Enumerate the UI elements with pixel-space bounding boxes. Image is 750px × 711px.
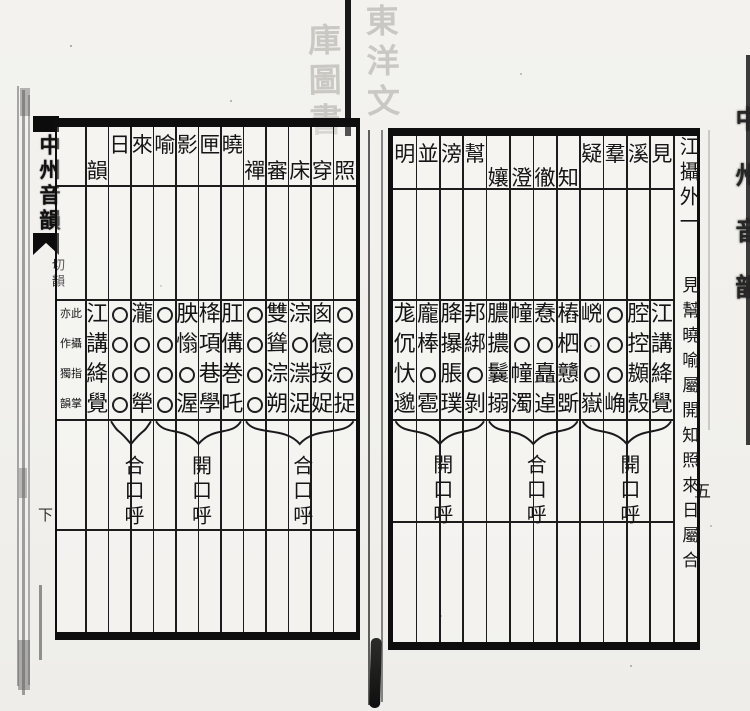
syllable-cell: 戇 xyxy=(557,361,580,389)
empty-slot-circle xyxy=(157,337,173,353)
empty-slot-circle xyxy=(247,307,263,323)
initial-header: 孃 xyxy=(487,166,510,190)
syllable-cell: 憃 xyxy=(533,301,556,329)
syllable-cell: 講 xyxy=(650,331,673,359)
empty-slot-circle xyxy=(337,337,353,353)
initial-header: 照 xyxy=(334,159,357,183)
syllable-cell: 覺 xyxy=(650,391,673,419)
initial-header: 羣 xyxy=(603,142,626,166)
syllable-cell: 殼 xyxy=(627,391,650,419)
empty-slot-circle xyxy=(157,307,173,323)
syllable-cell: 樁 xyxy=(557,301,580,329)
kouhu-brackets xyxy=(393,419,697,459)
syllable-cell: 聳 xyxy=(266,331,289,359)
kouhu-bracket xyxy=(490,422,578,444)
kouhu-bracket xyxy=(247,422,354,444)
empty-slot-circle xyxy=(112,307,128,323)
initial-header: 溪 xyxy=(627,142,650,166)
kouhu-label: 開口呼 xyxy=(428,454,457,529)
grid-hline xyxy=(57,185,356,187)
empty-slot-circle xyxy=(134,337,150,353)
syllable-cell: 腔 xyxy=(627,301,650,329)
syllable-cell: 巷 xyxy=(199,361,222,389)
note-char: 此 xyxy=(71,307,82,320)
initial-header: 審 xyxy=(266,159,289,183)
syllable-cell: 棒 xyxy=(416,331,439,359)
empty-slot-circle xyxy=(607,367,623,383)
syllable-cell: 瀧 xyxy=(131,301,154,329)
note-char: 指 xyxy=(71,367,82,380)
grid-vline xyxy=(153,127,155,632)
fold-crease-line xyxy=(22,90,25,695)
empty-slot-circle xyxy=(584,337,600,353)
syllable-cell: 囪 xyxy=(311,301,334,329)
syllable-cell: 逴 xyxy=(533,391,556,419)
syllable-cell: 邈 xyxy=(393,391,416,419)
grid-vline xyxy=(556,136,558,642)
initial-header: 見 xyxy=(650,142,673,166)
gutter-fold-line xyxy=(381,130,383,702)
empty-slot-circle xyxy=(537,337,553,353)
empty-slot-circle xyxy=(607,307,623,323)
empty-slot-circle xyxy=(607,337,623,353)
syllable-cell: 剝 xyxy=(463,391,486,419)
syllable-cell: 渥 xyxy=(176,391,199,419)
initial-header: 幫 xyxy=(463,142,486,166)
grid-vline xyxy=(533,136,535,642)
syllable-cell: 脹 xyxy=(440,361,463,389)
syllable-cell: 胦 xyxy=(176,301,199,329)
initial-header: 韻 xyxy=(86,159,109,183)
grid-vline xyxy=(130,127,132,632)
syllable-cell: 嶽 xyxy=(580,391,603,419)
note-char: 掌 xyxy=(71,397,82,410)
note-char: 亦 xyxy=(60,307,71,320)
syllable-cell: 鬤 xyxy=(487,361,510,389)
syllable-cell: 江 xyxy=(86,301,109,329)
syllable-cell: 柶 xyxy=(557,331,580,359)
initial-header: 並 xyxy=(416,142,439,166)
syllable-cell: 慃 xyxy=(176,331,199,359)
initial-header: 床 xyxy=(289,159,312,183)
grid-vline xyxy=(175,127,177,632)
syllable-cell: 栙 xyxy=(199,301,222,329)
syllable-cell: 綁 xyxy=(463,331,486,359)
syllable-cell: 挼 xyxy=(311,361,334,389)
syllable-cell: 胮 xyxy=(440,301,463,329)
initial-header: 徹 xyxy=(533,166,556,190)
gutter-fold-line xyxy=(368,130,370,705)
syllable-cell: 幢 xyxy=(510,361,533,389)
note-char: 韻 xyxy=(60,397,71,410)
library-seal: 東洋文 庫圖書 xyxy=(293,3,413,133)
grid-vline xyxy=(626,136,628,642)
spine-title-right: 中州音韻 xyxy=(728,106,750,330)
kouhu-bracket xyxy=(396,422,484,444)
initial-header: 來 xyxy=(131,133,154,157)
empty-slot-circle xyxy=(112,367,128,383)
syllable-cell: 雙 xyxy=(266,301,289,329)
empty-slot-circle xyxy=(112,337,128,353)
syllable-cell: 犖 xyxy=(131,391,154,419)
syllable-cell: 邦 xyxy=(463,301,486,329)
grid-vline xyxy=(603,136,605,642)
syllable-cell: 矗 xyxy=(533,361,556,389)
initial-header: 澄 xyxy=(510,166,533,190)
syllable-cell: 絳 xyxy=(650,361,673,389)
syllable-cell: 㩧 xyxy=(440,331,463,359)
fold-ink-blot xyxy=(19,468,27,498)
empty-slot-circle xyxy=(157,367,173,383)
syllable-cell: 控 xyxy=(627,331,650,359)
kouhu-label: 開口呼 xyxy=(615,454,644,529)
initial-header: 滂 xyxy=(440,142,463,166)
kouhu-bracket xyxy=(157,422,241,444)
syllable-cell: 龐 xyxy=(416,301,439,329)
initial-header: 日 xyxy=(109,133,132,157)
empty-slot-circle xyxy=(337,367,353,383)
kouhu-label: 開口呼 xyxy=(187,455,216,530)
empty-slot-circle xyxy=(134,367,150,383)
syllable-cell: 朔 xyxy=(266,391,289,419)
initial-header: 知 xyxy=(557,166,580,190)
empty-slot-circle xyxy=(514,337,530,353)
kouhu-label: 合口呼 xyxy=(521,454,550,529)
syllable-cell: 䫨 xyxy=(627,361,650,389)
syllable-cell: 吒 xyxy=(221,391,244,419)
gutter-fold-line-top xyxy=(345,0,351,136)
syllable-cell: 斲 xyxy=(557,391,580,419)
left-chart-page: 此亦攝作指獨掌韻韻江講絳覺日來瀧犖喻影胦慃渥匣栙項巷學曉肛傋巻吒禪審雙聳淙朔床淙… xyxy=(55,118,360,640)
syllable-cell: 江 xyxy=(650,301,673,329)
syllable-cell: 擃 xyxy=(487,331,510,359)
initial-header: 影 xyxy=(176,133,199,157)
spine-volume-label: 下 xyxy=(38,504,53,525)
seal-text-right-column: 東洋文 xyxy=(355,3,405,124)
syllable-cell: 伔 xyxy=(393,331,416,359)
grid-vline xyxy=(486,136,488,642)
syllable-cell: 搦 xyxy=(487,391,510,419)
initial-header: 明 xyxy=(393,142,416,166)
empty-slot-circle xyxy=(420,367,436,383)
syllable-cell: 娖 xyxy=(311,391,334,419)
syllable-cell: 講 xyxy=(86,331,109,359)
syllable-cell: 濁 xyxy=(510,391,533,419)
kouhu-brackets xyxy=(57,419,356,459)
syllable-cell: 璞 xyxy=(440,391,463,419)
kouhu-label: 合口呼 xyxy=(119,455,148,530)
fold-ink-blot xyxy=(18,640,30,690)
syllable-cell: 億 xyxy=(311,331,334,359)
empty-slot-circle xyxy=(247,367,263,383)
syllable-cell: 覺 xyxy=(86,391,109,419)
grid-vline xyxy=(509,136,511,642)
grid-vline xyxy=(462,136,464,642)
empty-slot-circle xyxy=(247,397,263,413)
syllable-cell: 巻 xyxy=(221,361,244,389)
note-char: 獨 xyxy=(60,367,71,380)
grid-vline xyxy=(649,136,651,642)
paper-speckles xyxy=(70,45,72,47)
initial-header: 匣 xyxy=(199,133,222,157)
syllable-cell: 崅 xyxy=(603,391,626,419)
syllable-cell: 忕 xyxy=(393,361,416,389)
syllable-cell: 尨 xyxy=(393,301,416,329)
initial-header: 穿 xyxy=(311,159,334,183)
kouhu-bracket xyxy=(112,422,151,444)
grid-vline xyxy=(416,136,418,642)
syllable-cell: 膿 xyxy=(487,301,510,329)
syllable-cell: 㟅 xyxy=(580,301,603,329)
initial-header: 禪 xyxy=(244,159,267,183)
syllable-cell: 肛 xyxy=(221,301,244,329)
gutter-ink-blot xyxy=(369,638,382,708)
fold-ink-blot xyxy=(20,88,30,116)
fold-crease-line xyxy=(39,585,42,660)
kouhu-label: 合口呼 xyxy=(288,455,317,530)
syllable-cell: 傋 xyxy=(221,331,244,359)
syllable-cell: 幢 xyxy=(510,301,533,329)
scanned-rhyme-book-spread: { "book_title": "中州音韻", "seal": { "descr… xyxy=(0,0,750,711)
grid-vline xyxy=(439,136,441,642)
empty-slot-circle xyxy=(337,307,353,323)
syllable-cell: 淙 xyxy=(266,361,289,389)
syllable-cell: 項 xyxy=(199,331,222,359)
empty-slot-circle xyxy=(467,367,483,383)
initial-header: 疑 xyxy=(580,142,603,166)
syllable-cell: 淙 xyxy=(289,301,312,329)
note-char: 作 xyxy=(60,337,71,350)
initial-header: 喻 xyxy=(154,133,177,157)
syllable-cell: 漴 xyxy=(289,361,312,389)
note-char: 攝 xyxy=(71,337,82,350)
syllable-cell: 捉 xyxy=(334,391,357,419)
fold-crease-line xyxy=(17,86,19,686)
initial-header: 曉 xyxy=(221,133,244,157)
page-edge-line xyxy=(708,130,710,430)
fold-crease-line xyxy=(28,95,30,685)
empty-slot-circle xyxy=(292,337,308,353)
syllable-cell: 學 xyxy=(199,391,222,419)
grid-vline xyxy=(579,136,581,642)
empty-slot-circle xyxy=(584,367,600,383)
empty-slot-circle xyxy=(179,367,195,383)
syllable-cell: 浞 xyxy=(289,391,312,419)
syllable-cell: 雹 xyxy=(416,391,439,419)
empty-slot-circle xyxy=(112,397,128,413)
kouhu-bracket xyxy=(583,422,671,444)
empty-slot-circle xyxy=(247,337,263,353)
right-chart-page: 明尨伔忕邈並龐棒雹滂胮㩧脹璞幫邦綁剝孃膿擃鬤搦澄幢幢濁徹憃矗逴知樁柶戇斲疑㟅嶽羣… xyxy=(388,128,700,650)
empty-slot-circle xyxy=(157,397,173,413)
syllable-cell: 絳 xyxy=(86,361,109,389)
section-heading: 江攝外一 xyxy=(674,136,703,236)
